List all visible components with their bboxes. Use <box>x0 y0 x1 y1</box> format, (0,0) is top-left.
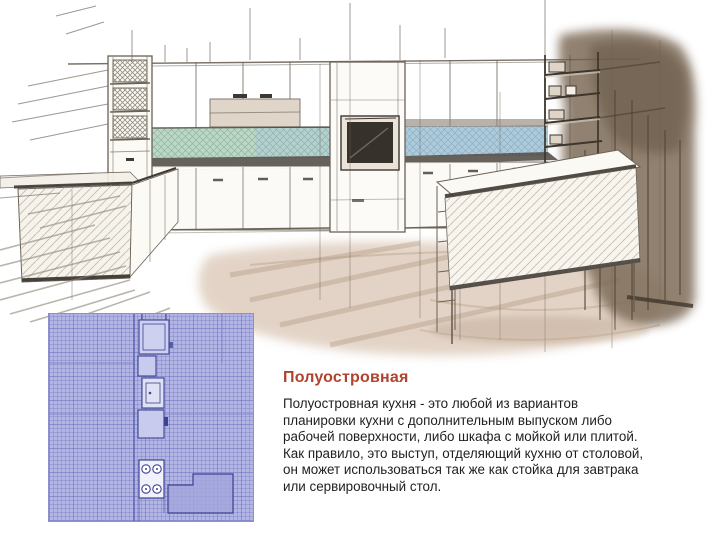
plan-cabinet <box>138 410 168 438</box>
article-line: или сервировочный стол. <box>283 479 687 496</box>
article-title: Полуостровная <box>283 369 687 387</box>
floor-plan <box>48 313 254 522</box>
article-line: планировки кухни с дополнительным выпуск… <box>283 413 687 430</box>
oven-column <box>330 62 405 232</box>
plan-sink <box>139 314 173 354</box>
article-line: рабочей поверхности, либо шкафа с мойкой… <box>283 429 687 446</box>
article-line: Полуостровная кухня - это любой из вариа… <box>283 396 687 413</box>
plan-counter <box>138 356 156 376</box>
article-line: Как правило, это выступ, отделяющий кухн… <box>283 446 687 463</box>
article-line: он может использоваться так же как стойк… <box>283 462 687 479</box>
floor-plan-drawing <box>49 314 253 521</box>
article: Полуостровная Полуостровная кухня - это … <box>283 369 687 496</box>
slide: Полуостровная Полуостровная кухня - это … <box>0 0 720 540</box>
plan-oven <box>142 378 164 408</box>
plan-counter-run <box>139 498 164 521</box>
plan-peninsula <box>168 474 233 513</box>
plan-stove <box>139 460 164 498</box>
left-counter <box>0 168 178 335</box>
hood-shelf <box>210 94 300 127</box>
